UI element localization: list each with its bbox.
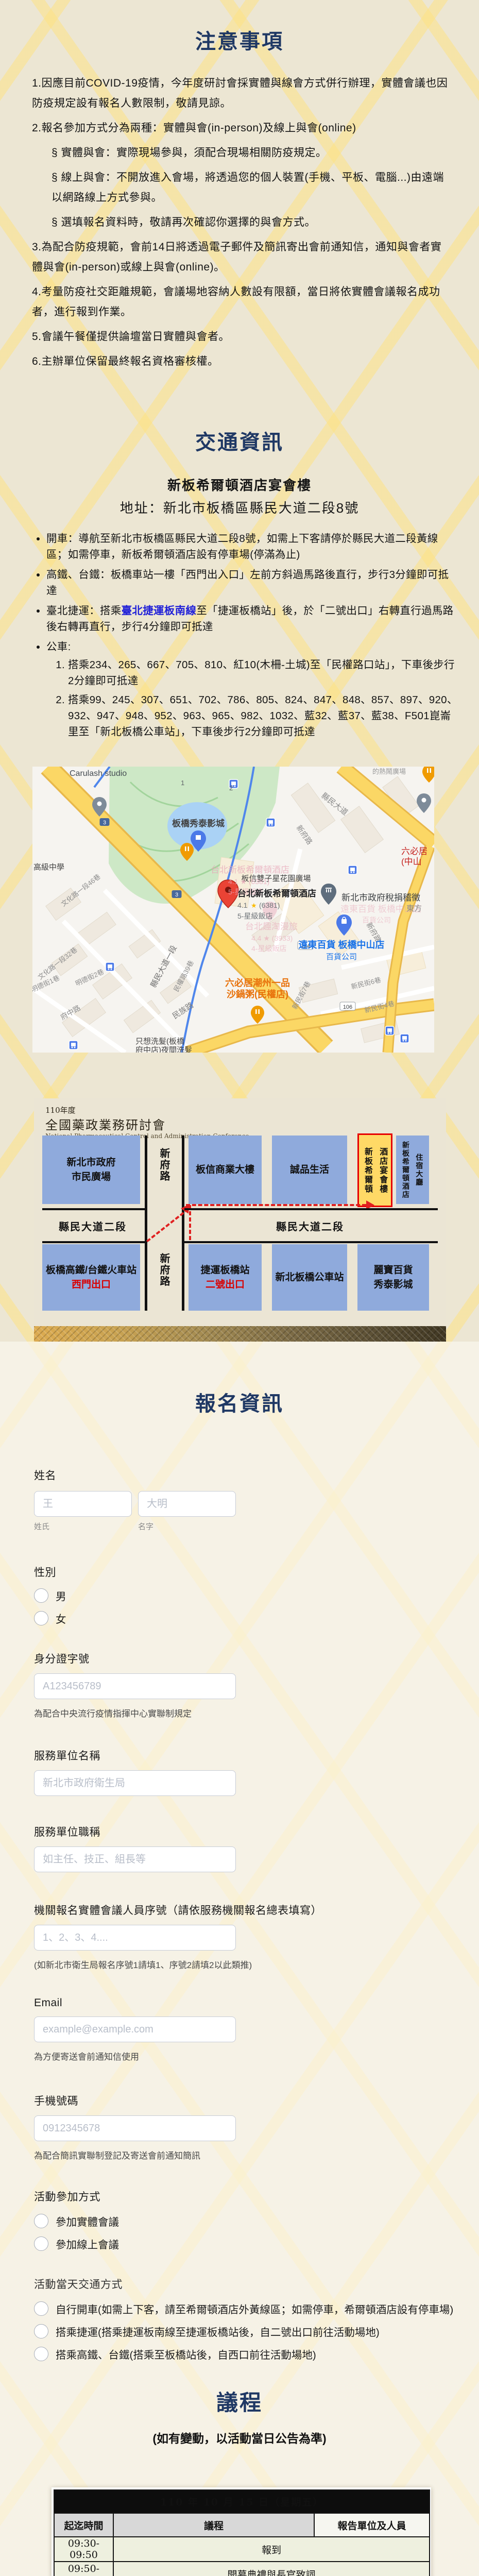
diagram-block-cityplaza: 新北市政府市民廣場 <box>42 1136 140 1204</box>
diagram-road-countyblvd-right: 縣民大道二段 <box>276 1218 344 1233</box>
map-label: 4-星級飯店 <box>251 944 286 953</box>
jobtitle-label: 服務單位職稱 <box>34 1824 446 1839</box>
agenda-date-header: 110 年 10 月 15 日（星期五） <box>54 2490 430 2513</box>
gender-option-female[interactable]: 女 <box>34 1611 446 1626</box>
venue-name: 新板希爾頓酒店宴會樓 <box>0 475 479 494</box>
mrt-line-link[interactable]: 臺北捷運板南線 <box>122 605 197 617</box>
map-label: 遠東百貨 板橋中山店 <box>298 939 384 950</box>
notice-title: 注意事項 <box>0 30 479 54</box>
map-label: Carulash studio <box>70 769 127 778</box>
diagram-road-xinfu-bottom: 新府路 <box>157 1253 172 1287</box>
traffic-section: 交通資訊 <box>0 431 479 454</box>
notice-item: § 實體與會：實際現場參與，須配合現場相關防疫規定。 <box>32 143 452 163</box>
agenda-note: (如有變動，以活動當日公告為準) <box>0 2429 479 2446</box>
road-number-badge: 3 <box>172 890 182 898</box>
map-label: 百貨公司 <box>362 916 391 924</box>
agenda-column-header: 起迄時間 <box>54 2513 113 2537</box>
email-input[interactable] <box>34 2016 236 2042</box>
notice-item: 3.為配合防疫規範，會前14日將透過電子郵件及簡訊寄出會前通知信，通知與會者實體… <box>32 237 452 277</box>
diagram-gold-bar <box>34 1326 446 1342</box>
road-number-badge: 106 <box>340 1002 355 1010</box>
org-field-group: 服務單位名稱 <box>34 1748 446 1796</box>
diagram-road-line <box>42 1208 145 1210</box>
serial-helper: (如新北市衛生局報名序號1請填1、序號2請填2以此類推) <box>34 1958 446 1971</box>
diagram-road-xinfu-top: 新府路 <box>157 1148 172 1182</box>
form-title: 報名資訊 <box>0 1392 479 1416</box>
map-label: 百貨公司 <box>326 953 357 961</box>
radio-icon[interactable] <box>34 1588 48 1603</box>
org-input[interactable] <box>34 1770 236 1796</box>
jobtitle-input[interactable] <box>34 1846 236 1872</box>
radio-icon[interactable] <box>34 1611 48 1625</box>
bus-route-item: 搭乘234、265、667、705、810、紅10(木柵-土城)至「民權路口站」… <box>68 657 458 689</box>
serial-field-group: 機關報名實體會議人員序號（請依服務機關報名總表填寫） (如新北市衛生局報名序號1… <box>34 1902 446 1971</box>
traffic-bullet: 高鐵、台鐵：板橋車站一樓「西門出入口」左前方斜過馬路後直行，步行3分鐘即可抵達 <box>46 567 458 599</box>
attend-option-inperson[interactable]: 參加實體會議 <box>34 2213 446 2229</box>
route-dashed-horizontal <box>186 1204 366 1206</box>
map-label: 只想洗髮(板橋 <box>135 1037 184 1046</box>
agenda-row: 09:30-09:50報到 <box>54 2537 430 2562</box>
agenda-section: 議程 <box>0 2391 479 2415</box>
diagram-block-mrt-station: 捷運板橋站二號出口 <box>189 1244 262 1311</box>
phone-label: 手機號碼 <box>34 2093 446 2108</box>
attend-field-group: 活動參加方式 參加實體會議 參加線上會議 <box>34 2189 446 2259</box>
radio-icon[interactable] <box>34 2301 48 2316</box>
map-label: ★ <box>251 902 257 909</box>
venue-map: 33114106 Carulash studio12的熱鬧廣場縣民大道新府路新府… <box>32 767 434 1053</box>
notice-item: 4.考量防疫社交距離規範，會議場地容納人數設有限額，當日將依實體會議報名成功者，… <box>32 282 452 322</box>
serial-label: 機關報名實體會議人員序號（請依服務機關報名總表填寫） <box>34 1902 446 1918</box>
diagram-block-banxin: 板信商業大樓 <box>189 1136 262 1204</box>
map-label: 4.1 ★ (6381) <box>228 877 269 886</box>
agenda-row: 09:50-10:05開幕典禮與長官致詞 <box>54 2562 430 2576</box>
map-label: (中山 <box>401 857 422 867</box>
diagram-road-line <box>182 1136 184 1311</box>
gender-option-male[interactable]: 男 <box>34 1588 446 1603</box>
diagram-block-train-station: 板橋高鐵/台鐵火車站西門出口 <box>42 1244 140 1311</box>
diagram-road-countyblvd-left: 縣民大道二段 <box>59 1218 127 1233</box>
transport-option-mrt[interactable]: 搭乘捷運(搭乘捷運板南線至捷運板橋站後，自二號出口前往活動場地) <box>34 2324 446 2339</box>
email-helper: 為方便寄送會前通知信使用 <box>34 2049 446 2062</box>
transport-option-rail[interactable]: 搭乘高鐵、台鐵(搭乘至板橋站後，自西口前往活動場地) <box>34 2346 446 2362</box>
diagram-title: 全國藥政業務研討會 <box>45 1115 166 1133</box>
transport-field-group: 活動當天交通方式 自行開車(如需上下客，請至希爾頓酒店外黃線區；如需停車，希爾頓… <box>34 2276 446 2369</box>
jobtitle-field-group: 服務單位職稱 <box>34 1824 446 1872</box>
name-label: 姓名 <box>34 1467 446 1483</box>
form-section: 報名資訊 <box>0 1392 479 1416</box>
map-label: 板橋秀泰影城 <box>172 818 225 828</box>
id-field-group: 身分證字號 為配合中央流行疫情指揮中心實聯制規定 <box>34 1651 446 1719</box>
map-label: 沙鍋粥(民權店) <box>227 989 288 999</box>
first-name-sublabel: 名字 <box>138 1521 236 1532</box>
map-label: 台北趣淘漫旅 <box>245 922 298 931</box>
map-label: 台北新板希爾頓酒店 <box>237 888 316 899</box>
notice-item: § 線上與會：不開放進入會場，將透過您的個人裝置(手機、平板、電腦...)由遠端… <box>32 167 452 208</box>
id-input[interactable] <box>34 1673 236 1699</box>
notice-item: 5.會議午餐僅提供論壇當日實體與會者。 <box>32 327 452 347</box>
diagram-road-line <box>42 1241 145 1243</box>
attend-option-online[interactable]: 參加線上會議 <box>34 2236 446 2251</box>
agenda-item: 報到 <box>113 2537 430 2562</box>
diagram-year: 110年度 <box>45 1105 76 1115</box>
traffic-title: 交通資訊 <box>0 431 479 454</box>
map-label: 2 <box>229 784 233 792</box>
agenda-table: 110 年 10 月 15 日（星期五）起迄時間議程報告單位及人員09:30-0… <box>52 2487 431 2576</box>
diagram-block-hotel-lobby: 新板希爾頓酒店住宿大廳 <box>396 1136 429 1204</box>
traffic-bullet: 公車:搭乘234、265、667、705、810、紅10(木柵-土城)至「民權路… <box>46 639 458 740</box>
svg-text:106: 106 <box>343 1004 352 1010</box>
notice-item: 1.因應目前COVID-19疫情，今年度研討會採實體與線會方式併行辦理，實體會議… <box>32 73 452 113</box>
radio-icon[interactable] <box>34 2214 48 2228</box>
diagram-road-line <box>184 1241 438 1243</box>
notice-item: 6.主辦單位保留最終報名資格審核權。 <box>32 351 452 371</box>
map-label: 5-星級飯店 <box>237 912 272 920</box>
map-label: 新北市政府稅捐稽徵 <box>341 893 420 903</box>
svg-text:3: 3 <box>175 892 178 898</box>
diagram-road-line <box>184 1208 438 1210</box>
agenda-column-header: 議程 <box>113 2513 314 2537</box>
phone-helper: 為配合簡訊實聯制登記及寄送會前通知簡訊 <box>34 2148 446 2161</box>
svg-text:3: 3 <box>103 820 106 826</box>
map-label: 六必居 <box>401 846 427 856</box>
name-field-group: 姓名 姓氏 名字 <box>34 1467 446 1532</box>
notice-section: 注意事項 <box>0 30 479 54</box>
walking-route-diagram: 110年度 全國藥政業務研討會 National Pharmaceutical … <box>34 1098 446 1342</box>
agenda-column-header: 報告單位及人員 <box>314 2513 430 2537</box>
registration-page: 注意事項 1.因應目前COVID-19疫情，今年度研討會採實體與線會方式併行辦理… <box>0 0 479 2576</box>
traffic-bullet-text: 臺北捷運：搭乘 <box>46 605 122 617</box>
map-label: (6381) <box>259 901 280 909</box>
bus-route-list: 搭乘234、265、667、705、810、紅10(木柵-土城)至「民權路口站」… <box>46 657 458 740</box>
email-field-group: Email 為方便寄送會前通知信使用 <box>34 1997 446 2062</box>
radio-icon[interactable] <box>34 2236 48 2251</box>
agenda-item: 開幕典禮與長官致詞 <box>113 2562 430 2576</box>
bus-route-item: 搭乘99、245、307、651、702、786、805、824、847、848… <box>68 692 458 740</box>
map-label: 4.4 ★ (3933) <box>251 934 293 942</box>
notice-body: 1.因應目前COVID-19疫情，今年度研討會採實體與線會方式併行辦理，實體會議… <box>32 73 452 376</box>
map-label: 東方 <box>406 904 422 913</box>
radio-icon[interactable] <box>34 2347 48 2361</box>
traffic-bullet-text: 公車: <box>46 641 71 653</box>
transport-option-drive[interactable]: 自行開車(如需上下客，請至希爾頓酒店外黃線區；如需停車，希爾頓酒店設有停車場) <box>34 2301 446 2316</box>
phone-input[interactable] <box>34 2115 236 2141</box>
map-label: 的熱鬧廣場 <box>372 768 406 775</box>
notice-item: 2.報名參加方式分為兩種：實體與會(in-person)及線上與會(online… <box>32 118 452 138</box>
diagram-block-bus-station: 新北板橋公車站 <box>272 1244 347 1311</box>
notice-item: § 選填報名資料時，敬請再次確認你選擇的與會方式。 <box>32 212 452 232</box>
map-label: 高級中學 <box>33 862 64 872</box>
id-helper: 為配合中央流行疫情指揮中心實聯制規定 <box>34 1706 446 1719</box>
map-label: 4.1 <box>237 901 248 909</box>
last-name-sublabel: 姓氏 <box>34 1521 132 1532</box>
phone-field-group: 手機號碼 為配合簡訊實聯制登記及寄送會前通知簡訊 <box>34 2093 446 2161</box>
org-label: 服務單位名稱 <box>34 1748 446 1763</box>
map-label: 1 <box>181 779 184 787</box>
map-label: 台北新板希爾頓酒店 <box>211 865 289 875</box>
map-label: 府中店)夜間洗髮 <box>135 1046 192 1053</box>
attend-label: 活動參加方式 <box>34 2189 446 2204</box>
last-name-input[interactable] <box>34 1491 132 1517</box>
agenda-time: 09:30-09:50 <box>54 2537 113 2562</box>
diagram-road-line <box>145 1136 147 1311</box>
map-label: 六必居潮州一品 <box>225 977 290 988</box>
gender-label: 性別 <box>34 1564 446 1580</box>
venue-address: 地址：新北市板橋區縣民大道二段8號 <box>0 498 479 517</box>
transport-label: 活動當天交通方式 <box>34 2276 446 2292</box>
radio-icon[interactable] <box>34 2324 48 2338</box>
agenda-title: 議程 <box>0 2391 479 2415</box>
traffic-bullet: 開車：導航至新北市板橋區縣民大道二段8號，如需上下客請停於縣民大道二段黃線區；如… <box>46 531 458 563</box>
gender-field-group: 性別 男 女 <box>34 1564 446 1633</box>
email-label: Email <box>34 1997 446 2009</box>
road-number-badge: 3 <box>100 818 110 826</box>
traffic-bullet: 臺北捷運：搭乘臺北捷運板南線至「捷運板橋站」後，於「二號出口」右轉直行過馬路後右… <box>46 603 458 635</box>
diagram-block-department-store: 麗寶百貨秀泰影城 <box>357 1244 429 1311</box>
agenda-time: 09:50-10:05 <box>54 2562 113 2576</box>
traffic-bullet-list: 開車：導航至新北市板橋區縣民大道二段8號，如需上下客請停於縣民大道二段黃線區；如… <box>36 531 458 744</box>
serial-input[interactable] <box>34 1925 236 1951</box>
id-label: 身分證字號 <box>34 1651 446 1666</box>
traffic-bullet-text: 開車：導航至新北市板橋區縣民大道二段8號，如需上下客請停於縣民大道二段黃線區；如… <box>46 533 438 561</box>
first-name-input[interactable] <box>138 1491 236 1517</box>
traffic-bullet-text: 高鐵、台鐵：板橋車站一樓「西門出入口」左前方斜過馬路後直行，步行3分鐘即可抵達 <box>46 569 449 597</box>
